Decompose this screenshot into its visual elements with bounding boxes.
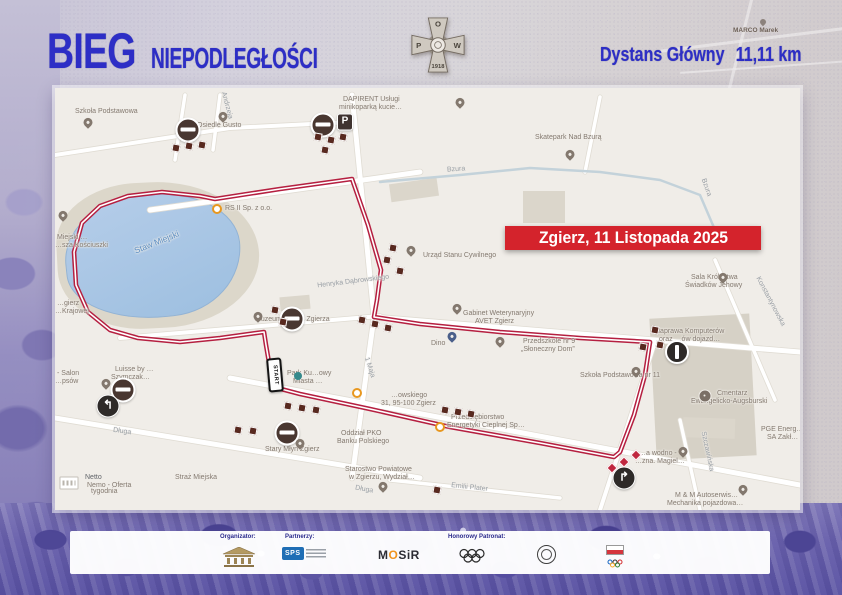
map-label: Długa — [355, 484, 374, 494]
poi-dot-icon — [352, 388, 362, 398]
map-label: Świadków Jehowy — [685, 282, 742, 289]
map-pin-icon — [57, 209, 70, 222]
route-marker-icon — [338, 132, 347, 141]
map-label: w Zgierzu, Wydział… — [349, 474, 415, 481]
map-label: Miejski … — [57, 234, 87, 241]
no-entry-icon — [176, 118, 201, 143]
map-pin-icon — [494, 335, 507, 348]
page-title: BIEG NIEPODLEGŁOŚCI — [47, 26, 404, 76]
netto-logo — [60, 477, 79, 490]
turn-left-icon: ↰ — [97, 395, 120, 418]
map-label: …a wodno - — [639, 450, 677, 457]
map-label: …gierz — [57, 300, 79, 307]
date-banner-text: Zgierz, 11 Listopada 2025 — [538, 229, 727, 248]
map-label: Szkoła Podstawowa — [75, 108, 138, 115]
route-map: Szkoła PodstawowaOsiedle GustoAndrzejaDA… — [55, 88, 800, 510]
route-marker-icon — [453, 407, 462, 416]
cemetery-marker-icon — [699, 390, 712, 403]
map-label: Dino — [431, 340, 445, 347]
map-label: Straż Miejska — [175, 474, 217, 481]
map-label: Szkoła Podstawowa nr 11 — [580, 372, 660, 379]
one-way-icon — [665, 340, 689, 364]
parking-icon: P — [337, 114, 353, 131]
partners-label: Partnerzy: — [285, 534, 314, 540]
route-marker-icon — [357, 315, 366, 324]
map-pin-icon — [454, 96, 467, 109]
map-label: …Krajowej — [55, 308, 89, 315]
date-banner: Zgierz, 11 Listopada 2025 — [505, 226, 761, 250]
poland-flag-icon — [606, 545, 624, 555]
map-label: Starostwo Powiatowe — [345, 466, 412, 473]
route-marker-icon — [171, 143, 180, 152]
map-label: Osiedle Gusto — [197, 122, 241, 129]
map-label: PGE Energ… — [761, 426, 800, 433]
map-label: Urząd Stanu Cywilnego — [423, 252, 496, 259]
mosir-logo: MOSiR — [378, 548, 420, 562]
map-label: 31, 95-100 Zgierz — [381, 400, 436, 407]
route-marker-icon — [370, 319, 379, 328]
route-marker-icon — [233, 425, 242, 434]
route-marker-icon — [440, 405, 449, 414]
map-pin-icon — [82, 116, 95, 129]
seal-emblem-icon — [537, 545, 556, 564]
map-label: Skatepark Nad Bzurą — [535, 134, 602, 141]
route-marker-icon — [270, 305, 279, 314]
map-label: M & M Autoserwis… — [675, 492, 738, 499]
patronage-label: Honorowy Patronat: — [448, 534, 505, 540]
route-marker-icon — [466, 409, 475, 418]
map-label: Bzura — [447, 165, 466, 173]
distance-value: 11,11 km — [736, 44, 802, 67]
map-label: - Salon — [57, 370, 79, 377]
map-label: tygodnia — [91, 488, 117, 495]
map-label: …zna. Magiel… — [635, 458, 685, 465]
organizer-logo — [222, 547, 256, 572]
route-marker-icon — [320, 145, 329, 154]
map-pin-icon — [377, 480, 390, 493]
map-label: AVET Zgierz — [475, 318, 514, 325]
distance-label: Dystans Główny — [600, 44, 724, 67]
map-label: Netto — [85, 474, 102, 481]
map-label: RS II Sp. z o.o. — [225, 205, 272, 212]
map-pin-icon — [737, 483, 750, 496]
map-label: Sala Królestwa — [691, 274, 738, 281]
map-label: Luisse by … — [115, 366, 154, 373]
polish-olympic-committee-icon — [606, 545, 624, 573]
route-marker-icon — [638, 342, 647, 351]
route-marker-icon — [395, 266, 404, 275]
turn-right-icon: ↱ — [613, 467, 636, 490]
map-label: Długa — [113, 427, 132, 436]
title-sub: NIEPODLEGŁOŚCI — [151, 45, 318, 74]
sps-logo: SPS — [282, 547, 326, 560]
title-main: BIEG — [47, 26, 136, 76]
route-marker-icon — [383, 323, 392, 332]
map-pin-icon — [451, 302, 464, 315]
map-label: „Słoneczny Dom” — [521, 346, 575, 353]
sps-logo-text: SPS — [282, 547, 304, 560]
map-label: MARCO Marek — [733, 27, 778, 34]
route-marker-icon — [248, 426, 257, 435]
route-marker-icon — [283, 401, 292, 410]
poi-dot-icon — [212, 204, 222, 214]
route-marker-icon — [184, 141, 193, 150]
map-pin-icon — [405, 244, 418, 257]
map-label: DAPIRENT Usługi — [343, 96, 400, 103]
map-label: SA Zakł… — [767, 434, 798, 441]
map-pin-icon — [564, 148, 577, 161]
route-marker-icon — [297, 403, 306, 412]
route-marker-icon — [311, 405, 320, 414]
route-marker-icon — [278, 317, 287, 326]
map-label: 1 Maja — [363, 356, 376, 378]
map-label: Emilii Plater — [451, 482, 488, 493]
map-label: Banku Polskiego — [337, 438, 389, 445]
pow-1918-badge-icon: O P W 1918 — [409, 14, 467, 76]
map-label: Stary Młyn Zgierz — [265, 446, 319, 453]
distance-info: Dystans Główny 11,11 km — [600, 44, 802, 67]
route-marker-icon — [432, 485, 441, 494]
route-marker-icon — [382, 255, 391, 264]
route-marker-icon — [313, 132, 322, 141]
map-pin-icon — [446, 330, 459, 343]
route-marker-icon — [650, 325, 659, 334]
map-label: Bzura — [700, 178, 713, 198]
sps-logo-lines — [306, 549, 326, 559]
map-label: Gabinet Weterynaryjny — [463, 310, 534, 317]
map-annotations-layer: Szkoła PodstawowaOsiedle GustoAndrzejaDA… — [55, 88, 800, 510]
race-poster: { "header": { "title_main": "BIEG", "tit… — [0, 0, 842, 595]
map-label: …sza Kościuszki — [55, 242, 108, 249]
park-marker-icon — [294, 372, 302, 380]
map-label: Henryka Dąbrowskiego — [317, 274, 390, 290]
route-marker-icon — [655, 340, 664, 349]
map-pin-icon — [677, 445, 690, 458]
map-label: Szczawińska — [700, 431, 715, 472]
map-label: Przedszkole nr 9 — [523, 338, 575, 345]
route-marker-icon — [326, 135, 335, 144]
map-label: …psów — [55, 378, 78, 385]
map-label: Energetyki Cieplnej Sp… — [447, 422, 525, 429]
map-label: Konstantynowska — [754, 276, 786, 328]
svg-text:1918: 1918 — [432, 64, 446, 70]
map-label: Naprawa Komputerów — [655, 328, 724, 335]
svg-text:P: P — [416, 41, 421, 50]
organizer-label: Organizator: — [220, 534, 256, 540]
route-marker-icon — [388, 243, 397, 252]
map-label: minikoparką kucie… — [339, 104, 402, 111]
map-label: …owskiego — [391, 392, 427, 399]
svg-text:W: W — [454, 41, 462, 50]
map-label: Staw Miejski — [133, 229, 180, 255]
map-label: Oddział PKO — [341, 430, 381, 437]
sponsor-bar: Organizator: Partnerzy: SPS MOSiR Honoro… — [70, 531, 770, 574]
route-marker-icon — [197, 140, 206, 149]
svg-text:O: O — [435, 20, 441, 29]
start-meta-sign: START — [266, 357, 284, 392]
olympic-rings-icon — [458, 548, 486, 569]
poi-dot-icon — [435, 422, 445, 432]
map-label: Cmentarz — [717, 390, 747, 397]
map-label: Mechanika pojazdowa… — [667, 500, 743, 507]
